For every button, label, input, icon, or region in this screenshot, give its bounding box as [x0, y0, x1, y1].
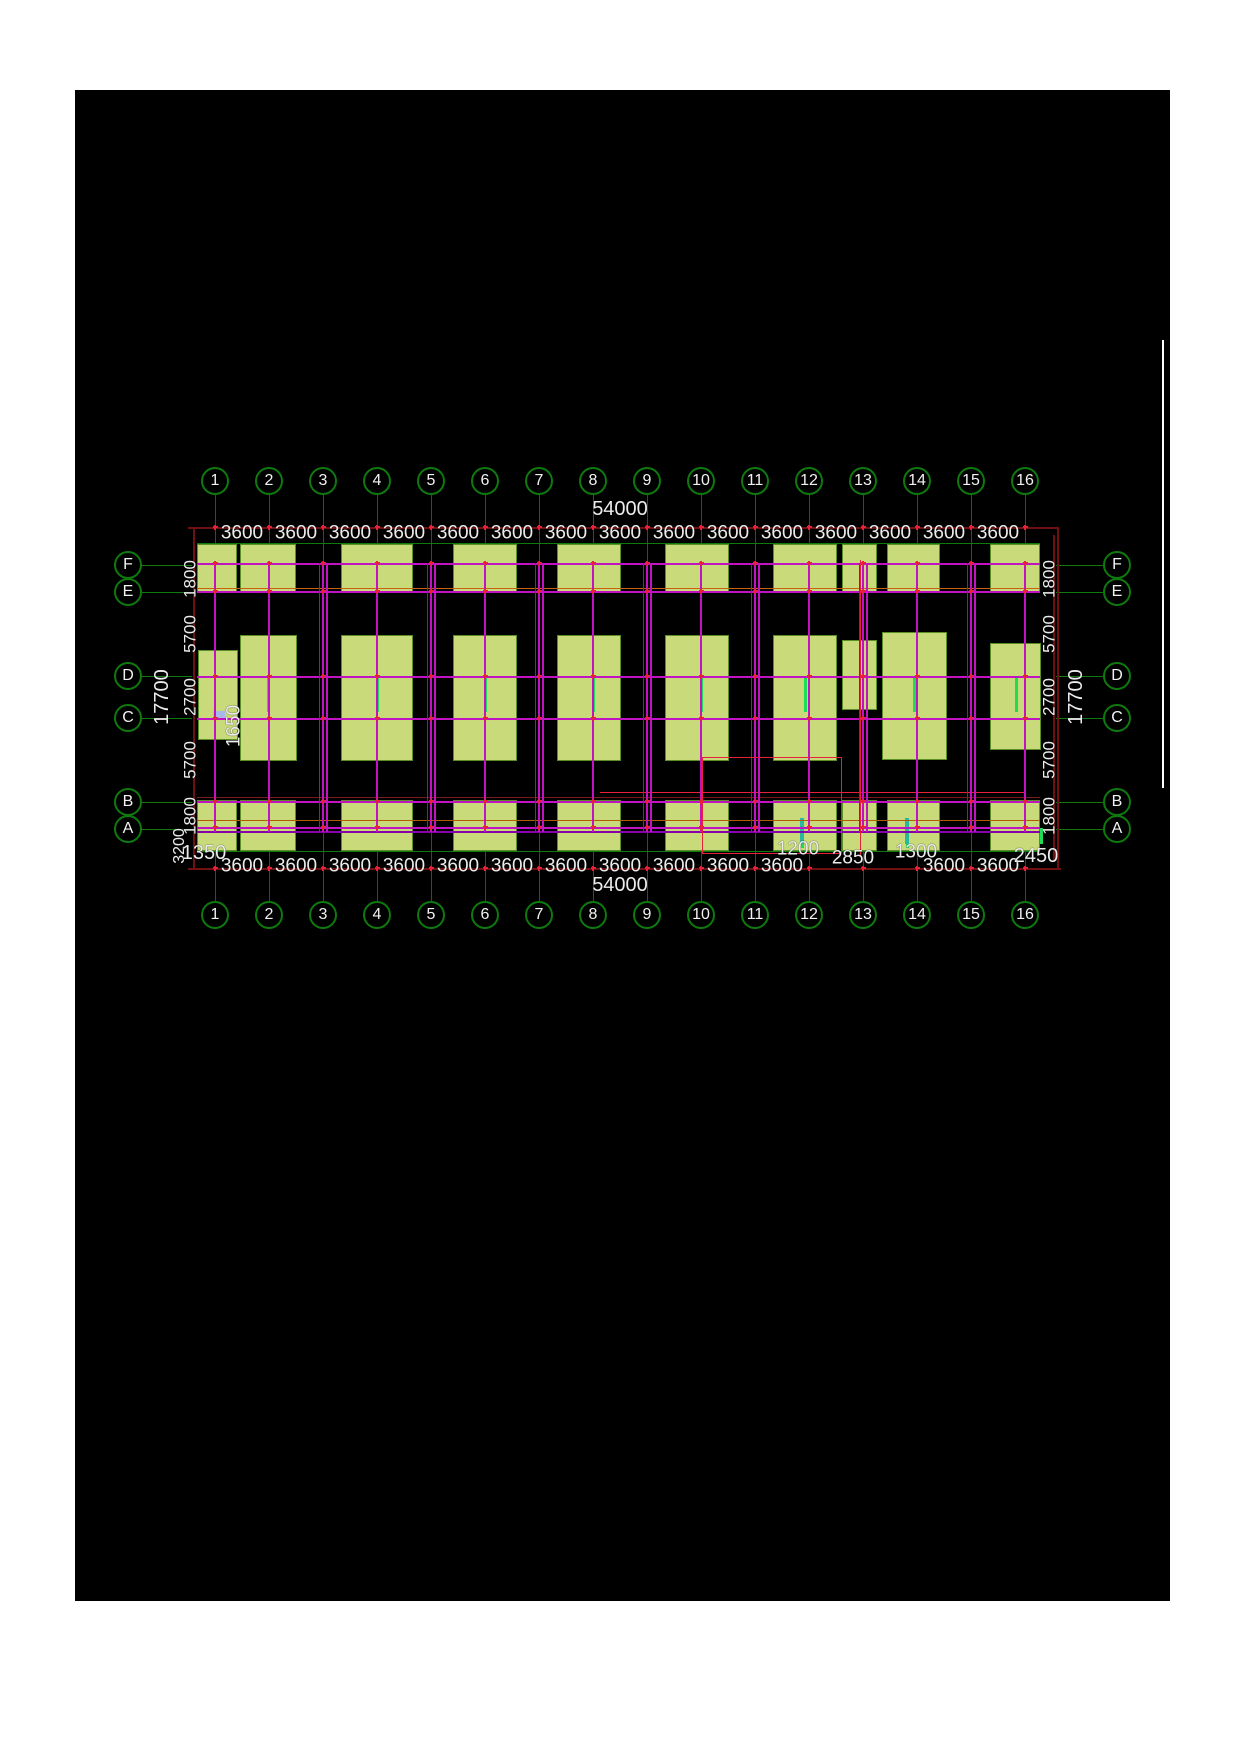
- column-grid-bubble-bottom: 5: [417, 901, 445, 929]
- intersection-mark: [808, 589, 810, 594]
- intersection-mark: [754, 525, 756, 530]
- intersection-mark: [376, 799, 378, 804]
- row-grid-bubble-left: D: [114, 662, 142, 690]
- intersection-mark: [538, 716, 540, 721]
- intersection-mark: [970, 589, 972, 594]
- row-grid-bubble-right: C: [1103, 704, 1131, 732]
- dim-bottom-extra: 2450: [1014, 846, 1059, 866]
- intersection-mark: [538, 674, 540, 679]
- dim-bay-bottom: 3600: [329, 857, 371, 876]
- column-grid-bubble-bottom: 12: [795, 901, 823, 929]
- wall-line-vertical: [484, 563, 486, 832]
- intersection-mark: [862, 561, 864, 566]
- column-grid-bubble-top: 1: [201, 467, 229, 495]
- column-grid-bubble-top: 15: [957, 467, 985, 495]
- row-grid-bubble-left: B: [114, 788, 142, 816]
- intersection-mark: [322, 589, 324, 594]
- wall-line-vertical-blue: [643, 563, 644, 832]
- footing-rect: [197, 544, 237, 593]
- dim-side-chain-left: 5700: [182, 741, 199, 779]
- dim-bay-top: 3600: [599, 524, 641, 543]
- column-grid-bubble-top: 4: [363, 467, 391, 495]
- intersection-mark: [538, 589, 540, 594]
- intersection-mark: [484, 825, 486, 830]
- intersection-mark: [754, 799, 756, 804]
- intersection-mark: [808, 866, 810, 871]
- intersection-mark: [700, 799, 702, 804]
- wall-line-vertical-blue: [535, 563, 536, 832]
- intersection-mark: [376, 525, 378, 530]
- intersection-mark: [646, 799, 648, 804]
- dim-bay-bottom: 3600: [599, 857, 641, 876]
- intersection-mark: [592, 716, 594, 721]
- intersection-mark: [808, 525, 810, 530]
- intersection-mark: [376, 825, 378, 830]
- dim-total-bottom: 54000: [592, 875, 648, 895]
- wall-line-vertical: [970, 563, 972, 832]
- intersection-mark: [916, 674, 918, 679]
- footing-rect: [665, 635, 729, 761]
- column-grid-bubble-bottom: 8: [579, 901, 607, 929]
- intersection-mark: [430, 866, 432, 871]
- intersection-mark: [970, 674, 972, 679]
- intersection-mark: [862, 799, 864, 804]
- intersection-mark: [268, 589, 270, 594]
- intersection-mark: [484, 866, 486, 871]
- red-rect-bottom: [702, 853, 841, 854]
- wall-line-vertical: [268, 563, 270, 832]
- intersection-mark: [700, 716, 702, 721]
- wall-line-vertical: [434, 563, 436, 832]
- wall-line-vertical: [214, 563, 216, 832]
- intersection-mark: [430, 674, 432, 679]
- dim-side-chain-right: 1800: [1041, 560, 1058, 598]
- intersection-mark: [538, 825, 540, 830]
- intersection-mark: [484, 589, 486, 594]
- wall-line-vertical: [866, 563, 868, 832]
- intersection-mark: [214, 866, 216, 871]
- intersection-mark: [1024, 799, 1026, 804]
- column-grid-bubble-bottom: 6: [471, 901, 499, 929]
- intersection-mark: [484, 525, 486, 530]
- column-grid-bubble-top: 10: [687, 467, 715, 495]
- wall-line-vertical-blue: [319, 563, 320, 832]
- intersection-mark: [484, 716, 486, 721]
- dim-bay-top: 3600: [437, 524, 479, 543]
- intersection-mark: [646, 561, 648, 566]
- dim-side-chain-right: 5700: [1041, 615, 1058, 653]
- wall-line-vertical: [808, 563, 810, 832]
- dim-side-chain-right: 5700: [1041, 741, 1058, 779]
- intersection-mark: [862, 825, 864, 830]
- intersection-mark: [592, 825, 594, 830]
- intersection-mark: [538, 799, 540, 804]
- dim-bottom-extra: 1200: [777, 840, 819, 859]
- column-grid-bubble-bottom: 16: [1011, 901, 1039, 929]
- intersection-mark: [322, 799, 324, 804]
- intersection-mark: [268, 866, 270, 871]
- intersection-mark: [1024, 525, 1026, 530]
- column-grid-bubble-top: 3: [309, 467, 337, 495]
- dim-side-total-right: 17700: [1066, 669, 1086, 725]
- intersection-mark: [430, 589, 432, 594]
- column-grid-bubble-bottom: 15: [957, 901, 985, 929]
- column-grid-bubble-top: 7: [525, 467, 553, 495]
- column-grid-bubble-top: 8: [579, 467, 607, 495]
- intersection-mark: [592, 525, 594, 530]
- dim-bay-top: 3600: [329, 524, 371, 543]
- intersection-mark: [916, 525, 918, 530]
- column-grid-bubble-top: 13: [849, 467, 877, 495]
- intersection-mark: [376, 716, 378, 721]
- wall-line-vertical: [974, 563, 976, 832]
- intersection-mark: [430, 561, 432, 566]
- wall-line-vertical-blue: [427, 563, 428, 832]
- green-centerline-tick: [1015, 678, 1018, 712]
- intersection-mark: [376, 589, 378, 594]
- intersection-mark: [430, 825, 432, 830]
- intersection-mark: [862, 525, 864, 530]
- column-grid-bubble-bottom: 2: [255, 901, 283, 929]
- wall-line-vertical: [542, 563, 544, 832]
- intersection-mark: [1024, 561, 1026, 566]
- dim-bay-bottom: 3600: [275, 857, 317, 876]
- dim-bay-top: 3600: [221, 524, 263, 543]
- intersection-mark: [916, 825, 918, 830]
- column-grid-bubble-top: 6: [471, 467, 499, 495]
- dim-bay-bottom: 3600: [545, 857, 587, 876]
- intersection-mark: [916, 799, 918, 804]
- column-grid-bubble-top: 11: [741, 467, 769, 495]
- intersection-mark: [268, 799, 270, 804]
- dim-bay-bottom: 3600: [707, 857, 749, 876]
- dim-bay-top: 3600: [545, 524, 587, 543]
- column-grid-bubble-top: 14: [903, 467, 931, 495]
- dim-side-total-left: 17700: [152, 669, 172, 725]
- row-leader-right: [1056, 592, 1103, 593]
- green-centerline-tick: [804, 678, 807, 712]
- intersection-mark: [1024, 825, 1026, 830]
- intersection-mark: [376, 866, 378, 871]
- intersection-mark: [646, 589, 648, 594]
- footing-rect: [990, 800, 1040, 851]
- footing-rect: [773, 544, 837, 593]
- intersection-mark: [700, 561, 702, 566]
- wall-line-vertical: [322, 563, 324, 832]
- intersection-mark: [322, 866, 324, 871]
- intersection-mark: [430, 799, 432, 804]
- intersection-mark: [430, 525, 432, 530]
- intersection-mark: [592, 589, 594, 594]
- intersection-mark: [592, 866, 594, 871]
- dim-bay-top: 3600: [869, 524, 911, 543]
- footing-rect: [665, 800, 729, 851]
- intersection-mark: [538, 525, 540, 530]
- intersection-mark: [808, 799, 810, 804]
- row-leader-right: [1056, 565, 1103, 566]
- column-grid-bubble-top: 9: [633, 467, 661, 495]
- row-grid-bubble-right: F: [1103, 551, 1131, 579]
- wall-line-vertical: [758, 563, 760, 832]
- intersection-mark: [268, 525, 270, 530]
- wall-line-vertical: [430, 563, 432, 832]
- intersection-mark: [484, 561, 486, 566]
- wall-line-vertical: [916, 563, 918, 832]
- intersection-mark: [592, 799, 594, 804]
- red-rect-right: [841, 757, 842, 853]
- intersection-mark: [376, 561, 378, 566]
- dim-bay-bottom: 3600: [221, 857, 263, 876]
- intersection-mark: [916, 866, 918, 871]
- wall-line-vertical-blue: [751, 563, 752, 832]
- red-rect-top: [702, 757, 841, 758]
- intersection-mark: [808, 674, 810, 679]
- column-grid-bubble-bottom: 1: [201, 901, 229, 929]
- row-grid-bubble-left: C: [114, 704, 142, 732]
- dim-bay-top: 3600: [977, 524, 1019, 543]
- intersection-mark: [754, 825, 756, 830]
- intersection-mark: [322, 525, 324, 530]
- dim-bay-top: 3600: [923, 524, 965, 543]
- intersection-mark: [646, 525, 648, 530]
- intersection-mark: [970, 561, 972, 566]
- red-rect-left: [702, 757, 703, 853]
- footing-rect: [557, 800, 621, 851]
- intersection-mark: [754, 561, 756, 566]
- column-grid-bubble-bottom: 13: [849, 901, 877, 929]
- dim-bottom-extra: 1300: [895, 843, 937, 862]
- column-grid-bubble-top: 2: [255, 467, 283, 495]
- intersection-mark: [322, 825, 324, 830]
- intersection-mark: [646, 716, 648, 721]
- intersection-mark: [1024, 589, 1026, 594]
- row-grid-bubble-left: A: [114, 815, 142, 843]
- intersection-mark: [862, 716, 864, 721]
- intersection-mark: [430, 716, 432, 721]
- dim-bay-top: 3600: [761, 524, 803, 543]
- dim-side-chain-right: 1800: [1041, 797, 1058, 835]
- intersection-mark: [700, 589, 702, 594]
- wall-line-vertical: [862, 563, 864, 832]
- intersection-mark: [1024, 674, 1026, 679]
- intersection-mark: [322, 674, 324, 679]
- dim-interior: 1650: [225, 705, 244, 747]
- intersection-mark: [700, 825, 702, 830]
- dim-bay-top: 3600: [707, 524, 749, 543]
- wall-line-vertical: [326, 563, 328, 832]
- intersection-mark: [322, 561, 324, 566]
- wall-line-vertical: [592, 563, 594, 832]
- intersection-mark: [538, 561, 540, 566]
- dim-side-chain-left: 5700: [182, 615, 199, 653]
- intersection-mark: [376, 674, 378, 679]
- footing-rect: [887, 544, 940, 593]
- dim-bay-top: 3600: [383, 524, 425, 543]
- footing-rect: [990, 544, 1040, 593]
- wall-line-vertical: [754, 563, 756, 832]
- row-grid-bubble-right: D: [1103, 662, 1131, 690]
- dim-bottom-extra: 2850: [832, 849, 874, 868]
- footing-rect: [557, 544, 621, 593]
- cad-canvas: 1122334455667788991010111112121313141415…: [75, 90, 1170, 1601]
- red-reference-line: [860, 560, 861, 855]
- row-grid-bubble-left: F: [114, 551, 142, 579]
- dim-side-chain-left: 1800: [182, 560, 199, 598]
- intersection-mark: [214, 674, 216, 679]
- intersection-mark: [808, 561, 810, 566]
- column-grid-bubble-bottom: 3: [309, 901, 337, 929]
- intersection-mark: [214, 525, 216, 530]
- intersection-mark: [322, 716, 324, 721]
- page: { "document": { "type": "cad-foundation-…: [0, 0, 1240, 1754]
- wall-line-vertical: [376, 563, 378, 832]
- wall-line-vertical: [646, 563, 648, 832]
- intersection-mark: [646, 674, 648, 679]
- intersection-mark: [268, 561, 270, 566]
- row-grid-bubble-right: E: [1103, 578, 1131, 606]
- intersection-mark: [538, 866, 540, 871]
- intersection-mark: [1024, 716, 1026, 721]
- dim-bay-top: 3600: [815, 524, 857, 543]
- row-leader-right: [1056, 802, 1103, 803]
- column-grid-bubble-top: 16: [1011, 467, 1039, 495]
- column-grid-bubble-top: 5: [417, 467, 445, 495]
- intersection-mark: [916, 716, 918, 721]
- intersection-mark: [214, 561, 216, 566]
- dim-bottom-left-offset: 1350: [182, 843, 227, 863]
- intersection-mark: [484, 674, 486, 679]
- dim-side-chain-left: 2700: [182, 678, 199, 716]
- intersection-mark: [970, 799, 972, 804]
- wall-line-vertical: [538, 563, 540, 832]
- column-grid-bubble-bottom: 4: [363, 901, 391, 929]
- dim-bay-top: 3600: [275, 524, 317, 543]
- dim-bay-bottom: 3600: [653, 857, 695, 876]
- intersection-mark: [592, 561, 594, 566]
- dim-side-chain-right: 2700: [1041, 678, 1058, 716]
- intersection-mark: [970, 825, 972, 830]
- intersection-mark: [646, 825, 648, 830]
- intersection-mark: [916, 561, 918, 566]
- footing-rect: [557, 635, 621, 761]
- column-grid-bubble-top: 12: [795, 467, 823, 495]
- intersection-mark: [754, 716, 756, 721]
- intersection-mark: [916, 589, 918, 594]
- intersection-mark: [646, 866, 648, 871]
- column-grid-bubble-bottom: 14: [903, 901, 931, 929]
- intersection-mark: [214, 716, 216, 721]
- column-grid-bubble-bottom: 9: [633, 901, 661, 929]
- intersection-mark: [700, 866, 702, 871]
- white-edge-line: [1162, 340, 1164, 788]
- intersection-mark: [808, 716, 810, 721]
- intersection-mark: [214, 799, 216, 804]
- intersection-mark: [754, 866, 756, 871]
- intersection-mark: [862, 589, 864, 594]
- intersection-mark: [214, 589, 216, 594]
- intersection-mark: [700, 674, 702, 679]
- row-grid-bubble-right: A: [1103, 815, 1131, 843]
- intersection-mark: [268, 674, 270, 679]
- intersection-mark: [970, 866, 972, 871]
- intersection-mark: [268, 716, 270, 721]
- dim-bay-bottom: 3600: [491, 857, 533, 876]
- row-grid-bubble-left: E: [114, 578, 142, 606]
- intersection-mark: [484, 799, 486, 804]
- dim-bay-bottom: 3600: [383, 857, 425, 876]
- wall-line-vertical: [650, 563, 652, 832]
- column-grid-bubble-bottom: 10: [687, 901, 715, 929]
- intersection-mark: [592, 674, 594, 679]
- dim-total-top: 54000: [592, 499, 648, 519]
- dim-bay-bottom: 3600: [437, 857, 479, 876]
- column-grid-bubble-bottom: 7: [525, 901, 553, 929]
- wall-line-vertical: [1024, 563, 1026, 832]
- wall-line-horizontal: [600, 792, 1025, 793]
- intersection-mark: [700, 525, 702, 530]
- wall-line-vertical-blue: [967, 563, 968, 832]
- dim-bay-top: 3600: [491, 524, 533, 543]
- column-grid-bubble-bottom: 11: [741, 901, 769, 929]
- intersection-mark: [862, 674, 864, 679]
- intersection-mark: [754, 674, 756, 679]
- intersection-mark: [214, 825, 216, 830]
- intersection-mark: [970, 525, 972, 530]
- intersection-mark: [970, 716, 972, 721]
- intersection-mark: [808, 825, 810, 830]
- intersection-mark: [754, 589, 756, 594]
- row-leader-right: [1056, 829, 1103, 830]
- footing-rect: [665, 544, 729, 593]
- row-grid-bubble-right: B: [1103, 788, 1131, 816]
- intersection-mark: [268, 825, 270, 830]
- dim-bay-top: 3600: [653, 524, 695, 543]
